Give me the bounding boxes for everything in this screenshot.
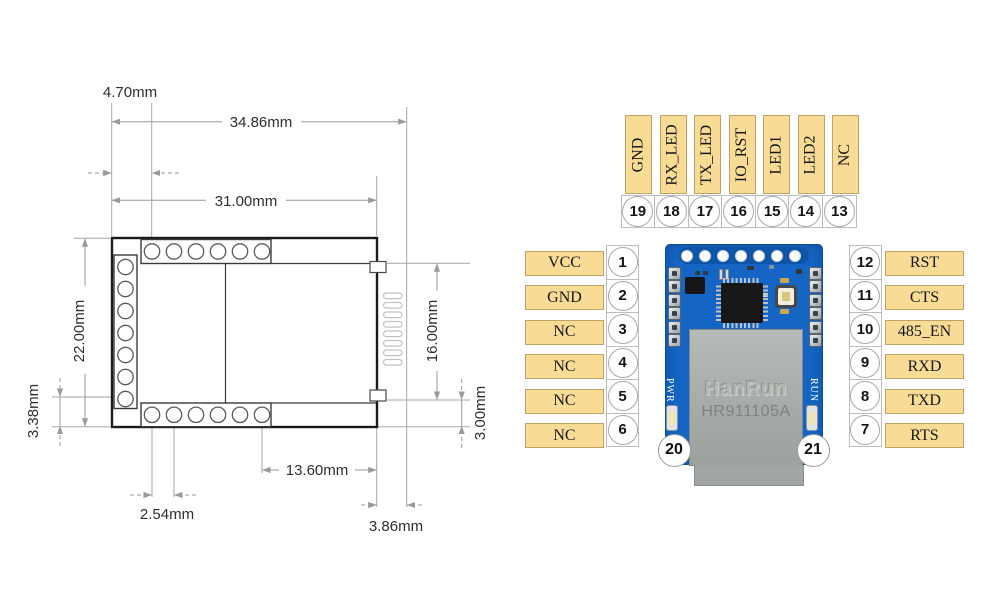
solder-pad [668,321,681,334]
left-pin-cell: 5 [606,379,639,414]
dim-tab-to-edge: 3.00mm [472,386,489,440]
right-pin-number-7: 7 [850,415,880,445]
crystal-pad [780,278,789,283]
left-pin-label-4: NC [525,354,604,379]
top-pin-label-15: LED1 [763,115,790,194]
passive-component [703,271,708,275]
crystal-pad [780,309,789,314]
pwr-silkscreen-text: PWR [664,378,675,403]
rj45-connector: HanRun HR911105A [689,329,803,466]
left-pin-number-column: 1 2 3 4 5 6 [606,246,639,447]
top-pin-cell: 17 [688,195,723,228]
pin-hole [699,250,711,262]
solder-pad [668,334,681,347]
screenshot-root: 4.70mm 34.86mm 31.00mm 22.00mm 3.38mm 16… [0,0,1000,600]
right-pin-number-12: 12 [850,247,880,277]
regulator-chip [685,277,705,294]
top-pin-label-16: IO_RST [729,115,756,194]
solder-pad [809,280,822,293]
top-pin-label-19: GND [625,115,652,194]
top-pin-label-14: LED2 [798,115,825,194]
right-pin-label-10: 485_EN [885,320,964,345]
right-pin-label-12: RST [885,251,964,276]
passive-component [747,266,754,270]
top-pin-number-15: 15 [757,196,788,227]
left-pin-cell: 4 [606,346,639,381]
right-pin-cell: 7 [849,413,882,448]
dim-pin-row-width: 31.00mm [215,193,278,210]
right-pin-cell: 9 [849,346,882,381]
top-pin-cell: 14 [788,195,823,228]
left-pin-label-6: NC [525,423,604,448]
pin-hole [753,250,765,262]
part-number-text: HR911105A [690,403,802,421]
left-pin-number-4: 4 [608,348,638,378]
top-pin-label-18: RX_LED [660,115,687,194]
right-pin-label-7: RTS [885,423,964,448]
right-pin-number-column: 12 11 10 9 8 7 [849,246,882,447]
right-pin-number-11: 11 [850,281,880,311]
crystal-oscillator [775,285,797,308]
left-pin-number-3: 3 [608,314,638,344]
pwr-led [666,405,678,431]
passive-component [695,271,700,275]
dim-pin-to-right-edge: 13.60mm [286,462,349,479]
pin-hole [717,250,729,262]
mechanical-drawing: 4.70mm 34.86mm 31.00mm 22.00mm 3.38mm 16… [0,0,510,600]
right-pin-label-11: CTS [885,285,964,310]
mcu-pins [763,285,768,321]
solder-pad [809,334,822,347]
right-pin-label-9: RXD [885,354,964,379]
right-pin-cell: 12 [849,245,882,280]
passive-component [769,265,774,269]
top-pin-number-14: 14 [790,196,821,227]
top-pin-cell: 19 [621,195,656,228]
solder-pad [809,307,822,320]
solder-pad [809,267,822,280]
right-pin-cell: 11 [849,279,882,314]
left-pin-number-2: 2 [608,281,638,311]
dim-overall-height: 22.00mm [71,300,88,363]
top-pin-cell: 16 [721,195,756,228]
run-led [806,405,818,431]
solder-pad [809,321,822,334]
top-pin-number-18: 18 [656,196,687,227]
top-pin-cell: 18 [654,195,689,228]
dim-plug-offset: 3.86mm [369,518,423,535]
top-pin-cell: 13 [822,195,857,228]
dim-pin-pitch: 2.54mm [140,506,194,523]
top-pin-number-17: 17 [689,196,720,227]
top-pin-number-19: 19 [622,196,653,227]
left-pin-label-5: NC [525,389,604,414]
bottom-pin-number-20: 20 [658,434,691,467]
left-pin-label-3: NC [525,320,604,345]
right-pin-label-8: TXD [885,389,964,414]
right-pin-cell: 8 [849,379,882,414]
left-pin-cell: 6 [606,413,639,448]
mcu-chip [721,283,763,323]
solder-pad [809,294,822,307]
dim-pin-edge-bottom: 3.38mm [25,384,42,438]
left-pin-label-1: VCC [525,251,604,276]
solder-pad [668,294,681,307]
left-pin-cell: 2 [606,279,639,314]
pin-hole [681,250,693,262]
brand-text: HanRun [690,378,802,401]
left-pin-number-5: 5 [608,381,638,411]
left-pin-cell: 3 [606,312,639,347]
rj45-connector-base [694,465,804,486]
rj45-contact-fingers [384,293,403,365]
top-pin-number-row: 19 18 17 16 15 14 13 [622,195,857,228]
run-silkscreen-text: RUN [808,378,819,402]
dim-connector-span: 16.00mm [424,300,441,363]
solder-pad [668,280,681,293]
top-pin-cell: 15 [755,195,790,228]
left-pin-number-1: 1 [608,247,638,277]
right-pin-cell: 10 [849,312,882,347]
pin-hole [771,250,783,262]
dim-overall-width: 34.86mm [230,114,293,131]
left-pin-cell: 1 [606,245,639,280]
pin-hole [735,250,747,262]
module-outline [112,238,402,427]
pin-hole [789,250,801,262]
right-pin-number-10: 10 [850,314,880,344]
solder-pad [668,267,681,280]
mcu-pins [723,323,761,328]
solder-pad [668,307,681,320]
bottom-pin-number-21: 21 [797,434,830,467]
right-pin-number-9: 9 [850,348,880,378]
right-pin-number-8: 8 [850,381,880,411]
top-pin-label-17: TX_LED [694,115,721,194]
top-pin-number-13: 13 [824,196,855,227]
passive-component [796,269,802,274]
top-pin-number-16: 16 [723,196,754,227]
top-pin-label-13: NC [832,115,859,194]
left-pin-number-6: 6 [608,415,638,445]
dim-pin-offset-top: 4.70mm [103,84,157,101]
left-pin-label-2: GND [525,285,604,310]
